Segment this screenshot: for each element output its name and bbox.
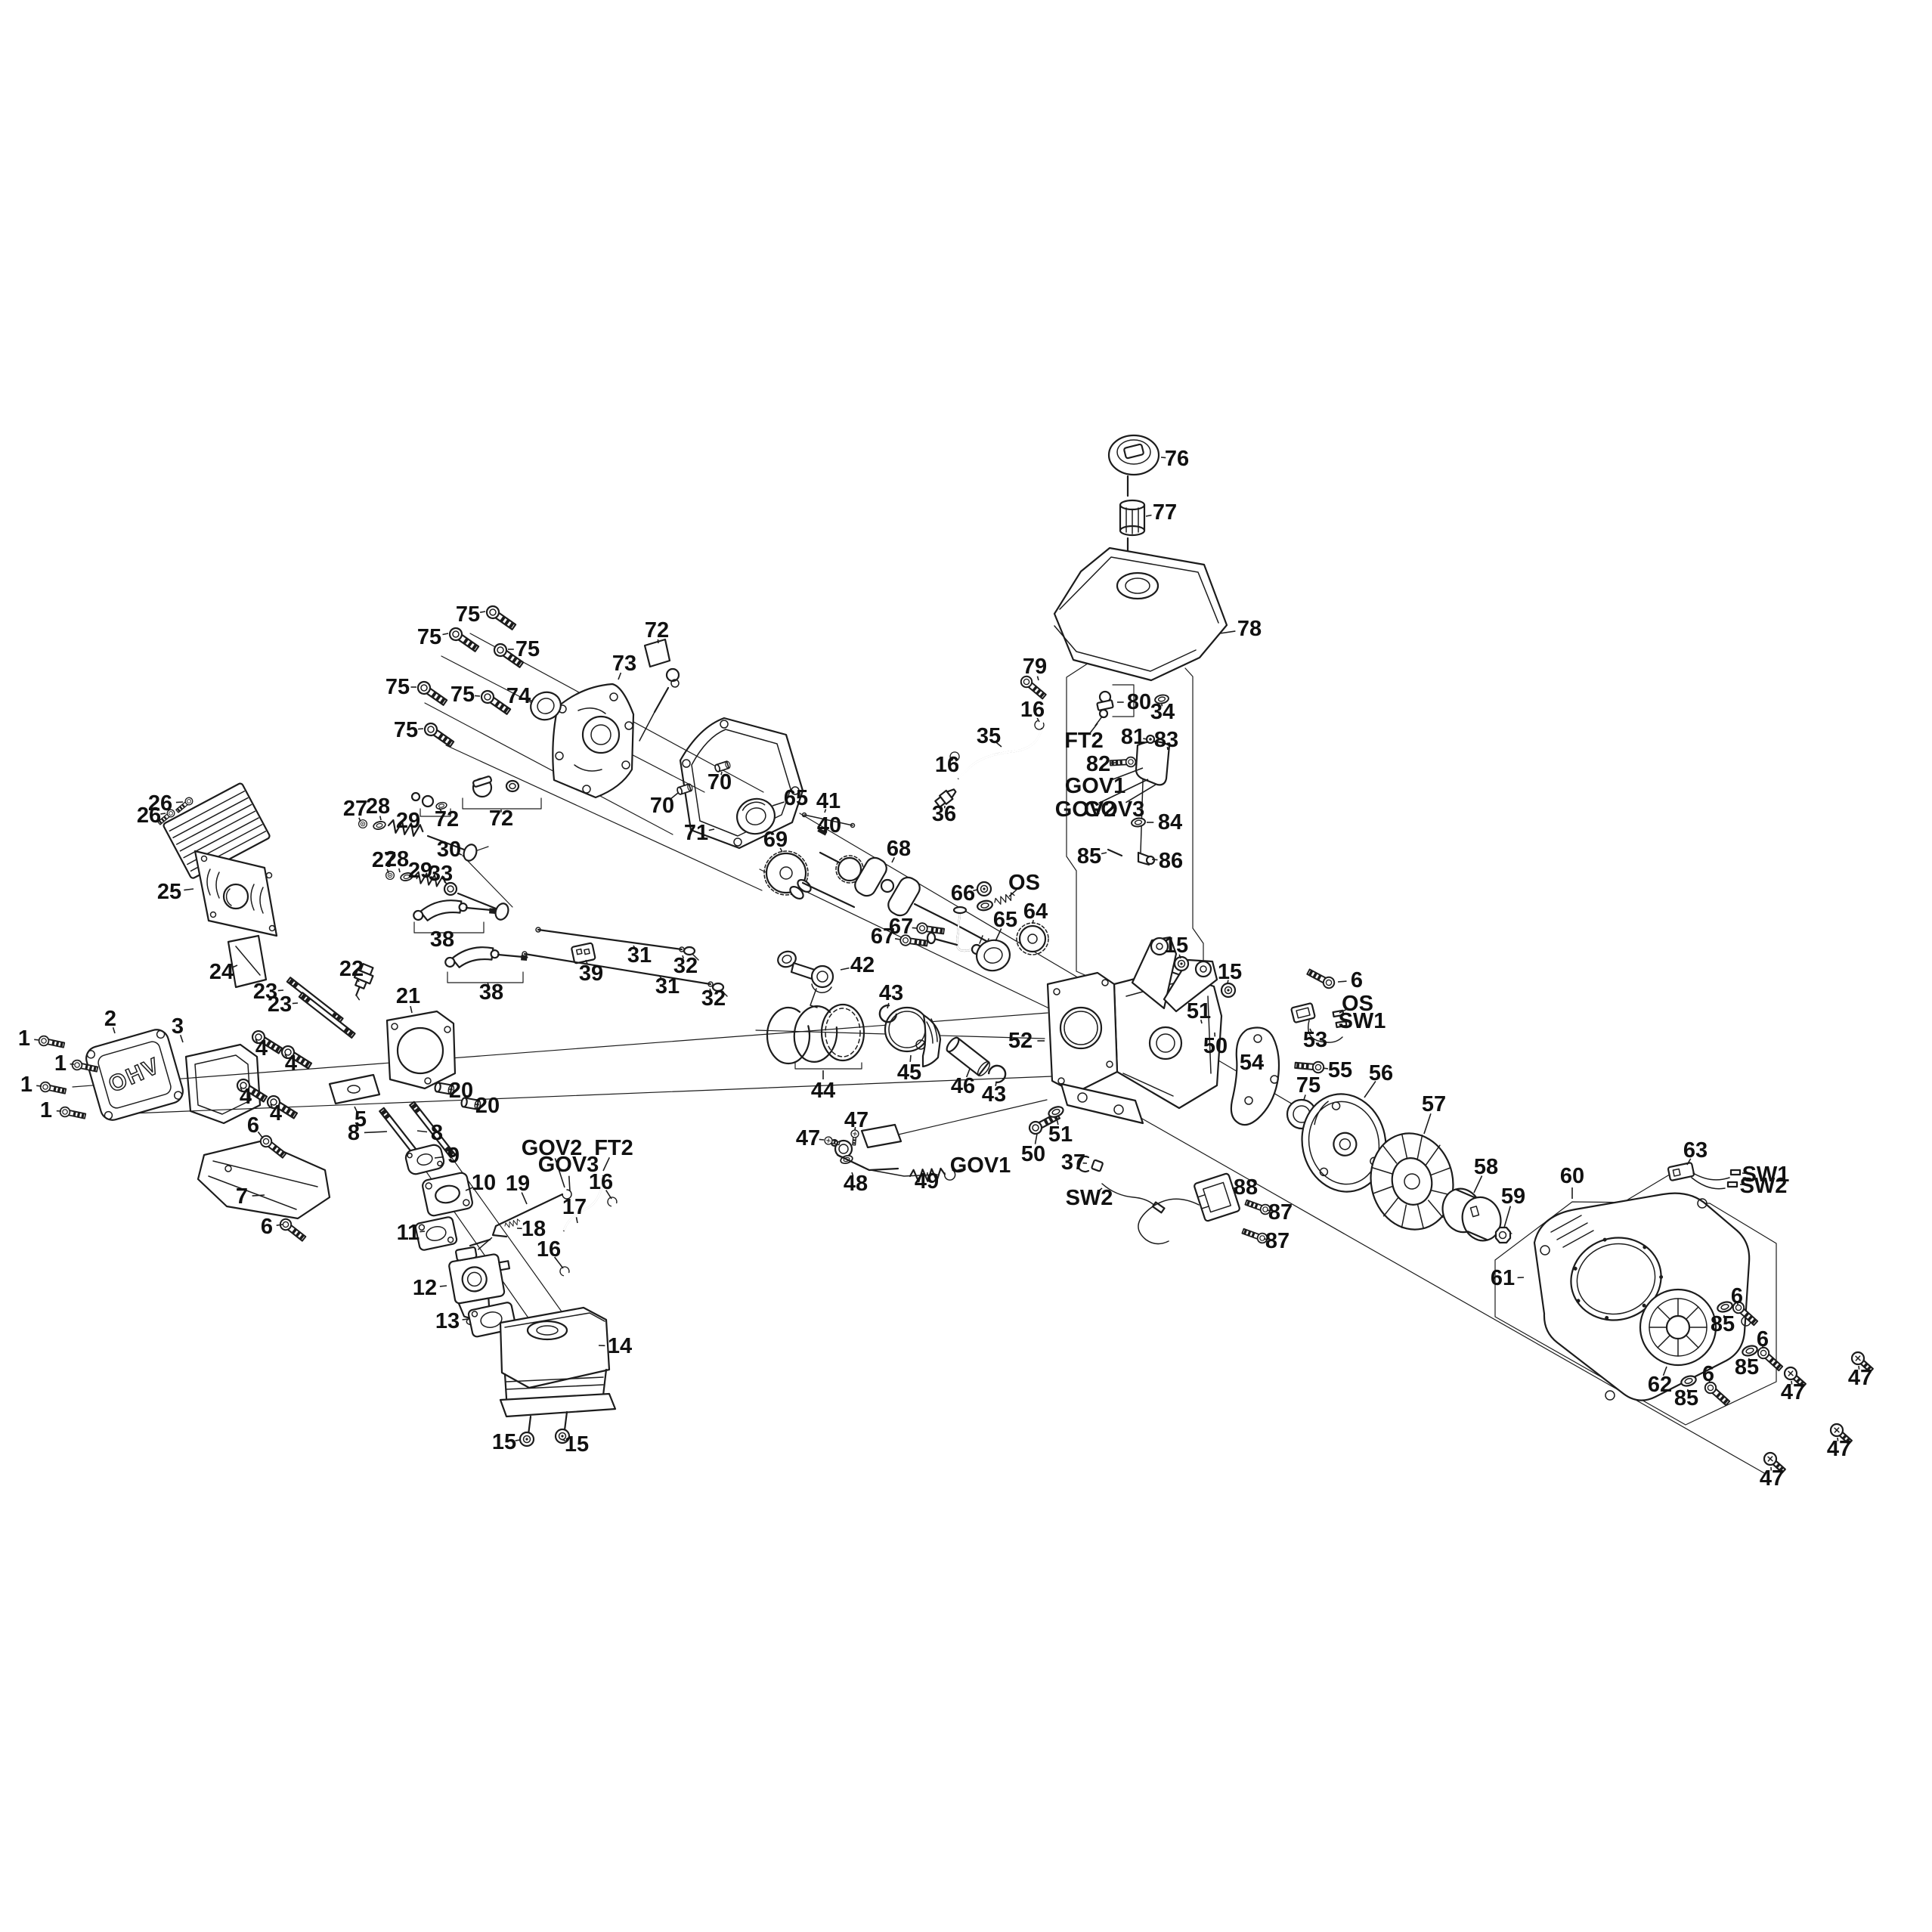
head-studs (287, 977, 355, 1038)
callout-75: 75 (417, 625, 441, 649)
valve-cover: OHV (83, 1027, 185, 1123)
callout-85: 85 (1674, 1386, 1698, 1410)
callout-44: 44 (811, 1079, 835, 1103)
callout-sw2: SW2 (1740, 1174, 1788, 1198)
callout-28: 28 (366, 794, 390, 819)
callout-72: 72 (645, 618, 669, 642)
callout-16: 16 (935, 753, 959, 777)
callout-41: 41 (816, 789, 841, 813)
callout-29: 29 (396, 809, 420, 833)
callout-72: 72 (489, 807, 513, 831)
blower-housing-61 (1534, 1194, 1751, 1401)
callout-38: 38 (430, 927, 454, 952)
callout-56: 56 (1369, 1061, 1393, 1085)
leader-line-23 (293, 1003, 298, 1004)
bolt-6c (1306, 967, 1336, 989)
callout-23: 23 (268, 992, 292, 1017)
callout-ft2: FT2 (594, 1136, 633, 1160)
callout-2: 2 (104, 1007, 116, 1031)
callout-16: 16 (589, 1170, 613, 1194)
leader-line-71 (709, 829, 714, 831)
callout-55: 55 (1328, 1058, 1352, 1082)
leader-line-1 (36, 1085, 42, 1086)
callout-11: 11 (397, 1221, 420, 1245)
callout-14: 14 (608, 1334, 632, 1358)
cylinder-crankcase (1048, 937, 1235, 1123)
callout-64: 64 (1023, 899, 1048, 924)
callout-27: 27 (343, 797, 367, 821)
callout-32: 32 (701, 986, 726, 1011)
leader-line-26 (176, 802, 183, 803)
callout-52: 52 (1008, 1029, 1033, 1053)
callout-15: 15 (492, 1430, 516, 1454)
leader-line-gov3 (569, 1176, 570, 1191)
air-cleaner (500, 1308, 615, 1446)
heat-shield-7 (198, 1141, 330, 1218)
callout-79: 79 (1023, 655, 1047, 679)
oil-filler-cap (472, 776, 519, 797)
callout-40: 40 (817, 813, 841, 838)
callout-26: 26 (137, 803, 161, 828)
callout-sw1: SW1 (1339, 1009, 1386, 1033)
callout-84: 84 (1158, 810, 1182, 834)
fuel-cap (1109, 435, 1159, 496)
connecting-rod (776, 949, 833, 1008)
callout-15: 15 (1164, 933, 1188, 958)
callout-78: 78 (1237, 617, 1262, 641)
leader-line-1 (34, 1039, 39, 1040)
callout-71: 71 (684, 821, 708, 845)
callout-51: 51 (1048, 1122, 1073, 1147)
callout-53: 53 (1303, 1028, 1327, 1052)
callout-68: 68 (887, 837, 911, 861)
carb-gasket-11 (415, 1216, 457, 1251)
callout-60: 60 (1560, 1164, 1584, 1188)
ball-bearing-right (974, 937, 1013, 974)
governor-gear-64 (1017, 923, 1048, 955)
leader-line-77 (1146, 516, 1152, 517)
piston (885, 1008, 940, 1067)
bolt-55 (1295, 1060, 1324, 1073)
callout-75: 75 (450, 683, 475, 707)
leader-line-75 (475, 695, 480, 696)
callout-75: 75 (1296, 1073, 1321, 1098)
stop-switch-63 (1667, 1163, 1740, 1189)
callout-3: 3 (172, 1014, 184, 1039)
callout-66: 66 (951, 881, 975, 906)
callout-6: 6 (1702, 1362, 1714, 1386)
callout-33: 33 (429, 862, 453, 886)
callout-77: 77 (1153, 500, 1177, 525)
fuel-tank (1054, 548, 1227, 680)
piston-rings (767, 1003, 864, 1064)
callout-31: 31 (655, 974, 680, 999)
callout-4: 4 (255, 1036, 268, 1060)
leader-line-8 (364, 1132, 387, 1132)
callout-62: 62 (1648, 1373, 1672, 1397)
callout-48: 48 (844, 1172, 868, 1196)
callout-13: 13 (435, 1309, 460, 1333)
callout-1: 1 (40, 1098, 52, 1122)
callout-80: 80 (1127, 690, 1151, 714)
leader-line-23 (278, 990, 283, 991)
callout-49: 49 (915, 1169, 939, 1194)
callout-47: 47 (1760, 1466, 1784, 1491)
callout-47: 47 (1848, 1366, 1872, 1390)
leader-line-65 (772, 802, 785, 806)
callout-42: 42 (850, 953, 875, 977)
leader-line-25 (184, 889, 194, 890)
callout-25: 25 (157, 880, 181, 904)
flywheel-nut-59 (1496, 1228, 1510, 1243)
callout-43: 43 (879, 981, 903, 1005)
callout-20: 20 (475, 1094, 500, 1118)
callout-70: 70 (707, 770, 732, 794)
leader-line-13 (463, 1319, 469, 1320)
callout-4: 4 (285, 1051, 297, 1076)
pin-clip-43b (987, 1062, 1009, 1084)
leader-line-8 (417, 1131, 427, 1132)
callout-75: 75 (385, 675, 410, 699)
callout-36: 36 (932, 802, 956, 826)
nut-66 (977, 882, 991, 896)
callout-75: 75 (394, 718, 418, 742)
callout-sw2: SW2 (1066, 1186, 1113, 1210)
callout-54: 54 (1240, 1051, 1264, 1075)
callout-35: 35 (977, 724, 1001, 748)
callout-6: 6 (1731, 1284, 1743, 1308)
leader-line-86 (1152, 859, 1158, 860)
callout-6: 6 (261, 1215, 273, 1239)
callout-65: 65 (784, 786, 808, 810)
callout-88: 88 (1234, 1175, 1258, 1200)
callout-16: 16 (1020, 698, 1045, 722)
callout-gov3: GOV3 (1084, 797, 1145, 822)
callout-ft2: FT2 (1064, 729, 1104, 753)
leader-line-75 (480, 611, 485, 612)
washer-66 (977, 899, 993, 912)
parts-diagram-page: OHV (0, 0, 1932, 1932)
callout-6: 6 (247, 1113, 259, 1138)
recoil-starter-62 (1640, 1290, 1716, 1365)
callout-69: 69 (763, 828, 788, 852)
callout-7: 7 (236, 1184, 248, 1209)
shield-bolt-6b (278, 1217, 308, 1243)
leader-line-55 (1323, 1068, 1328, 1069)
oil-dipstick (639, 639, 679, 741)
callout-43: 43 (982, 1082, 1006, 1107)
callout-16: 16 (537, 1237, 561, 1262)
callout-76: 76 (1165, 447, 1189, 471)
callout-34: 34 (1150, 700, 1175, 724)
callout-22: 22 (339, 957, 364, 981)
callout-85: 85 (1735, 1355, 1759, 1379)
callout-6: 6 (1351, 968, 1363, 992)
callout-12: 12 (413, 1276, 437, 1300)
callout-45: 45 (897, 1060, 921, 1085)
intake-manifold (422, 1172, 474, 1216)
callout-4: 4 (270, 1101, 282, 1125)
callout-58: 58 (1474, 1155, 1498, 1179)
callout-os: OS (1008, 871, 1040, 895)
leader-line-42 (841, 968, 850, 970)
callout-20: 20 (449, 1079, 473, 1103)
callout-59: 59 (1501, 1184, 1525, 1209)
callout-50: 50 (1021, 1142, 1045, 1166)
bracket-5 (330, 1075, 379, 1104)
callout-8: 8 (348, 1121, 360, 1145)
leader-line-7 (252, 1195, 265, 1196)
callout-30: 30 (437, 838, 461, 862)
leader-line-11 (420, 1231, 425, 1232)
callout-4: 4 (240, 1085, 252, 1109)
callout-24: 24 (209, 960, 234, 984)
callout-83: 83 (1154, 728, 1178, 752)
callout-38: 38 (479, 980, 503, 1005)
leader-line-59 (1504, 1206, 1510, 1228)
callout-87: 87 (1268, 1200, 1293, 1225)
callout-21: 21 (396, 984, 420, 1008)
callout-50: 50 (1203, 1034, 1228, 1058)
leader-line-85 (1101, 853, 1107, 854)
callout-75: 75 (456, 602, 480, 627)
callout-47: 47 (1781, 1380, 1805, 1404)
callout-51: 51 (1187, 999, 1211, 1023)
callout-82: 82 (1086, 752, 1110, 776)
leader-line-75 (443, 633, 449, 635)
callout-1: 1 (18, 1026, 30, 1051)
callout-81: 81 (1121, 725, 1145, 749)
callout-15: 15 (1218, 960, 1242, 984)
callout-87: 87 (1265, 1229, 1290, 1253)
callout-85: 85 (1077, 844, 1101, 868)
leader-line-75 (418, 729, 423, 729)
side-cover-54 (1231, 1028, 1279, 1125)
callout-65: 65 (993, 908, 1017, 932)
callout-61: 61 (1491, 1266, 1515, 1290)
callout-19: 19 (506, 1172, 530, 1196)
callout-85: 85 (1711, 1312, 1735, 1336)
callout-37: 37 (1061, 1150, 1085, 1175)
callout-46: 46 (951, 1074, 975, 1098)
callout-57: 57 (1422, 1092, 1446, 1116)
callout-gov1: GOV1 (950, 1153, 1011, 1178)
callout-8: 8 (431, 1121, 443, 1145)
callout-47: 47 (1827, 1437, 1851, 1461)
leader-line-6 (1338, 981, 1347, 982)
callout-1: 1 (54, 1051, 67, 1076)
leader-line-12 (440, 1286, 447, 1286)
exploded-parts-diagram: OHV (0, 0, 1932, 1932)
callout-31: 31 (627, 943, 652, 968)
callout-39: 39 (579, 961, 603, 986)
crankcase-cover (553, 684, 633, 797)
callout-47: 47 (796, 1126, 820, 1150)
callout-28: 28 (385, 847, 409, 872)
callout-1: 1 (20, 1073, 33, 1097)
drain-washer-51a (1047, 1105, 1064, 1119)
callout-73: 73 (612, 652, 636, 676)
callout-17: 17 (562, 1195, 587, 1219)
callout-70: 70 (650, 794, 674, 818)
callout-6: 6 (1757, 1327, 1769, 1351)
cylinder-head (156, 782, 277, 936)
callout-74: 74 (506, 684, 531, 708)
callout-47: 47 (844, 1108, 868, 1132)
callout-67: 67 (871, 924, 895, 949)
leader-line-26 (160, 813, 166, 814)
callout-72: 72 (435, 807, 459, 831)
callout-63: 63 (1683, 1138, 1708, 1163)
head-gasket (387, 1011, 455, 1088)
leader-line-82 (1111, 763, 1116, 763)
callout-75: 75 (516, 637, 540, 661)
callout-86: 86 (1159, 849, 1183, 873)
callout-15: 15 (565, 1432, 589, 1457)
callout-10: 10 (472, 1171, 496, 1195)
callout-9: 9 (447, 1144, 460, 1168)
leader-line-57 (1424, 1113, 1431, 1134)
